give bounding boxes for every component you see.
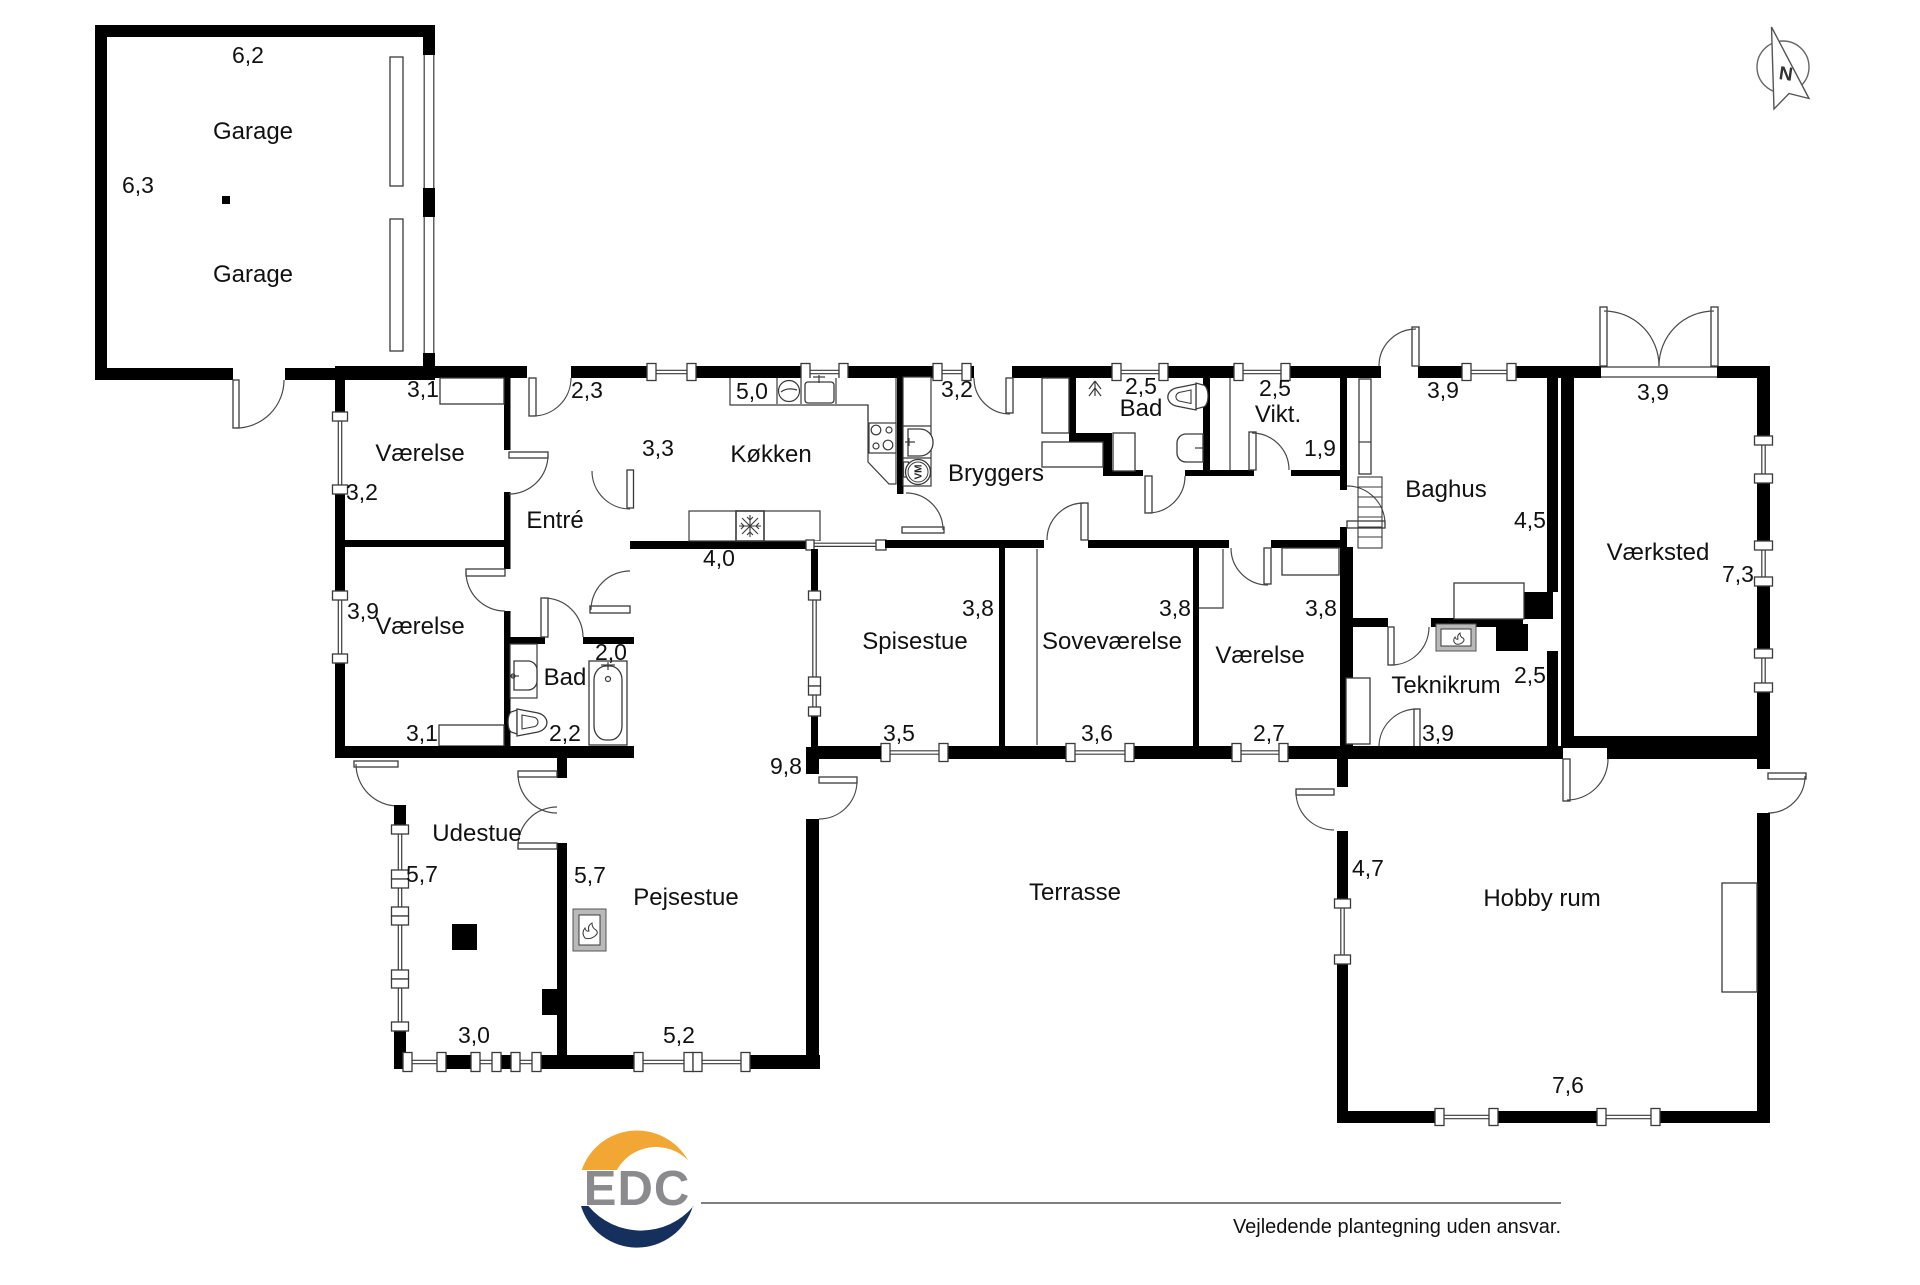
svg-text:6,3: 6,3 [122,172,154,198]
svg-text:Spisestue: Spisestue [862,628,967,655]
svg-text:3,9: 3,9 [347,598,379,624]
svg-text:7,3: 7,3 [1722,561,1754,587]
svg-text:5,7: 5,7 [406,861,438,887]
svg-text:2,5: 2,5 [1259,375,1291,401]
svg-text:Bryggers: Bryggers [948,460,1044,487]
svg-text:3,0: 3,0 [458,1022,490,1048]
svg-text:3,2: 3,2 [346,479,378,505]
svg-text:5,0: 5,0 [736,378,768,404]
svg-text:4,5: 4,5 [1514,507,1546,533]
svg-text:2,2: 2,2 [549,720,581,746]
svg-text:Bad: Bad [544,664,587,691]
svg-text:3,3: 3,3 [642,435,674,461]
svg-text:3,2: 3,2 [941,376,973,402]
svg-text:3,8: 3,8 [962,595,994,621]
svg-text:3,8: 3,8 [1159,595,1191,621]
svg-text:Værelse: Værelse [375,440,464,467]
svg-text:Terrasse: Terrasse [1029,879,1121,906]
svg-text:1,9: 1,9 [1304,435,1336,461]
svg-text:5,7: 5,7 [574,862,606,888]
svg-text:Værelse: Værelse [1215,642,1304,669]
svg-text:2,0: 2,0 [595,639,627,665]
svg-text:3,1: 3,1 [406,720,438,746]
svg-text:3,9: 3,9 [1427,377,1459,403]
svg-text:Baghus: Baghus [1405,476,1486,503]
svg-text:3,9: 3,9 [1637,379,1669,405]
svg-text:Soveværelse: Soveværelse [1042,628,1182,655]
svg-text:Vejledende plantegning uden an: Vejledende plantegning uden ansvar. [1233,1216,1561,1238]
svg-text:Bad: Bad [1120,395,1163,422]
svg-text:4,7: 4,7 [1352,855,1384,881]
svg-text:Værelse: Værelse [375,613,464,640]
svg-text:3,8: 3,8 [1305,595,1337,621]
svg-text:6,2: 6,2 [232,42,264,68]
svg-text:Pejsestue: Pejsestue [633,884,738,911]
svg-text:3,6: 3,6 [1081,720,1113,746]
svg-text:3,9: 3,9 [1422,720,1454,746]
svg-text:Værksted: Værksted [1607,539,1710,566]
svg-text:Garage: Garage [213,261,293,288]
svg-text:Garage: Garage [213,118,293,145]
svg-text:Entré: Entré [526,507,583,534]
svg-text:N: N [1778,63,1795,86]
svg-text:2,7: 2,7 [1253,720,1285,746]
svg-text:Teknikrum: Teknikrum [1391,672,1500,699]
svg-text:Hobby rum: Hobby rum [1483,885,1600,912]
svg-text:VM: VM [914,465,925,480]
svg-text:7,6: 7,6 [1552,1072,1584,1098]
svg-text:Køkken: Køkken [730,441,811,468]
svg-text:2,3: 2,3 [571,377,603,403]
svg-text:3,1: 3,1 [407,376,439,402]
svg-text:9,8: 9,8 [770,753,802,779]
svg-text:3,5: 3,5 [883,720,915,746]
svg-text:EDC: EDC [584,1162,690,1216]
svg-text:Vikt.: Vikt. [1255,401,1301,428]
svg-text:5,2: 5,2 [663,1022,695,1048]
svg-text:4,0: 4,0 [703,545,735,571]
svg-text:2,5: 2,5 [1514,662,1546,688]
svg-text:Udestue: Udestue [432,820,521,847]
